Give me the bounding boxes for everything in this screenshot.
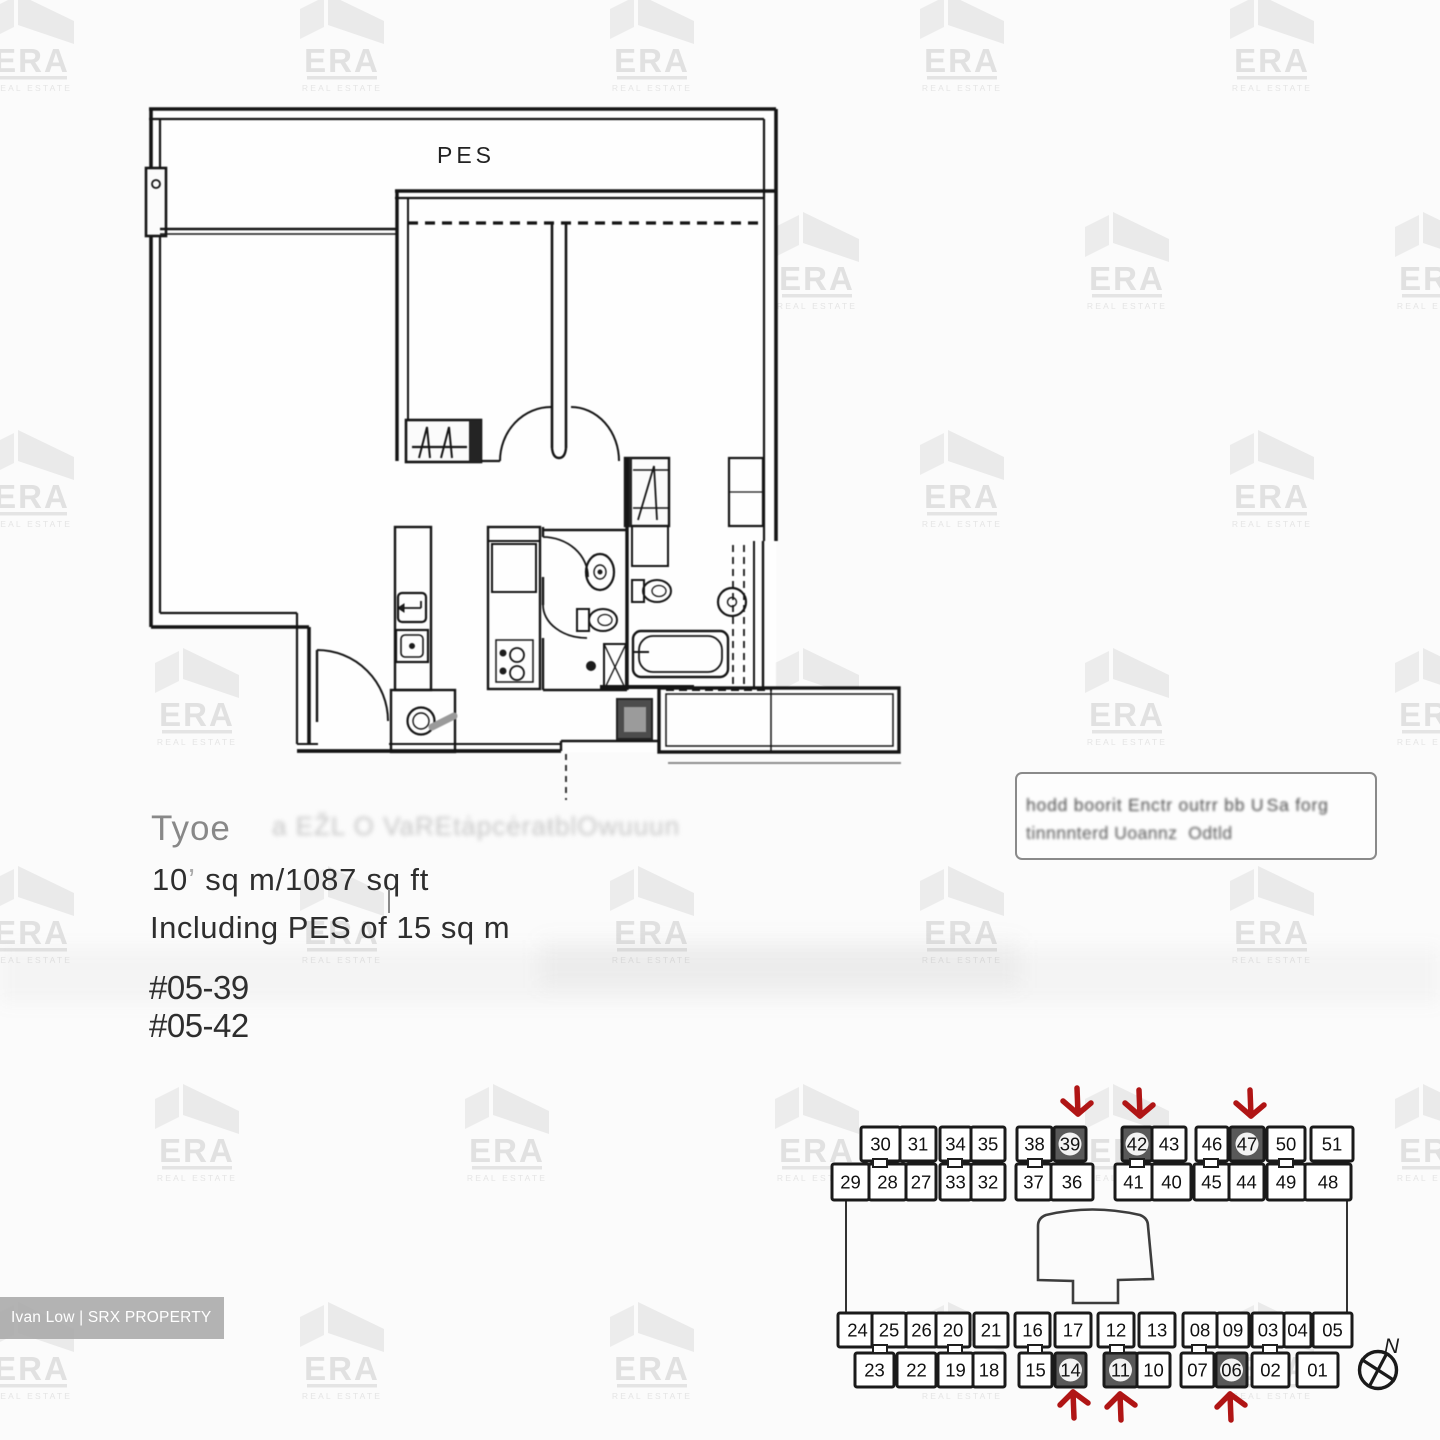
svg-text:41: 41 [1123, 1172, 1144, 1193]
svg-text:11: 11 [1111, 1360, 1130, 1381]
svg-text:18: 18 [979, 1360, 1000, 1381]
svg-text:32: 32 [978, 1172, 999, 1193]
svg-text:17: 17 [1063, 1320, 1084, 1341]
svg-text:39: 39 [1060, 1134, 1081, 1155]
svg-text:44: 44 [1236, 1172, 1257, 1193]
svg-text:05: 05 [1322, 1320, 1343, 1341]
svg-text:47: 47 [1237, 1134, 1258, 1155]
svg-text:29: 29 [840, 1172, 861, 1193]
svg-text:14: 14 [1060, 1360, 1081, 1381]
svg-text:30: 30 [870, 1134, 891, 1155]
svg-text:26: 26 [911, 1320, 932, 1341]
svg-text:02: 02 [1260, 1360, 1281, 1381]
svg-text:10: 10 [1143, 1360, 1164, 1381]
svg-text:22: 22 [906, 1360, 927, 1381]
svg-text:40: 40 [1161, 1172, 1182, 1193]
svg-text:09: 09 [1223, 1320, 1244, 1341]
svg-text:24: 24 [847, 1320, 868, 1341]
svg-text:16: 16 [1022, 1320, 1043, 1341]
svg-text:27: 27 [911, 1172, 932, 1193]
svg-text:13: 13 [1147, 1320, 1168, 1341]
svg-text:45: 45 [1201, 1172, 1222, 1193]
svg-text:19: 19 [945, 1360, 966, 1381]
svg-text:21: 21 [981, 1320, 1002, 1341]
svg-text:49: 49 [1276, 1172, 1297, 1193]
svg-text:51: 51 [1322, 1134, 1343, 1155]
svg-text:43: 43 [1159, 1134, 1180, 1155]
svg-text:46: 46 [1202, 1134, 1223, 1155]
svg-text:34: 34 [945, 1134, 966, 1155]
svg-text:N: N [1384, 1335, 1400, 1358]
svg-text:03: 03 [1258, 1320, 1279, 1341]
svg-text:33: 33 [945, 1172, 966, 1193]
svg-text:48: 48 [1318, 1172, 1339, 1193]
svg-text:04: 04 [1287, 1320, 1308, 1341]
svg-text:50: 50 [1276, 1134, 1297, 1155]
svg-text:15: 15 [1025, 1360, 1046, 1381]
svg-text:07: 07 [1187, 1360, 1208, 1381]
svg-text:37: 37 [1023, 1172, 1044, 1193]
svg-text:08: 08 [1190, 1320, 1211, 1341]
svg-text:06: 06 [1221, 1360, 1242, 1381]
svg-text:38: 38 [1024, 1134, 1045, 1155]
svg-text:01: 01 [1307, 1360, 1328, 1381]
svg-text:28: 28 [877, 1172, 898, 1193]
svg-text:35: 35 [978, 1134, 999, 1155]
svg-text:42: 42 [1127, 1134, 1148, 1155]
svg-text:12: 12 [1106, 1320, 1127, 1341]
svg-text:23: 23 [864, 1360, 885, 1381]
svg-text:25: 25 [879, 1320, 900, 1341]
svg-text:31: 31 [908, 1134, 929, 1155]
svg-text:20: 20 [943, 1320, 964, 1341]
svg-text:36: 36 [1062, 1172, 1083, 1193]
